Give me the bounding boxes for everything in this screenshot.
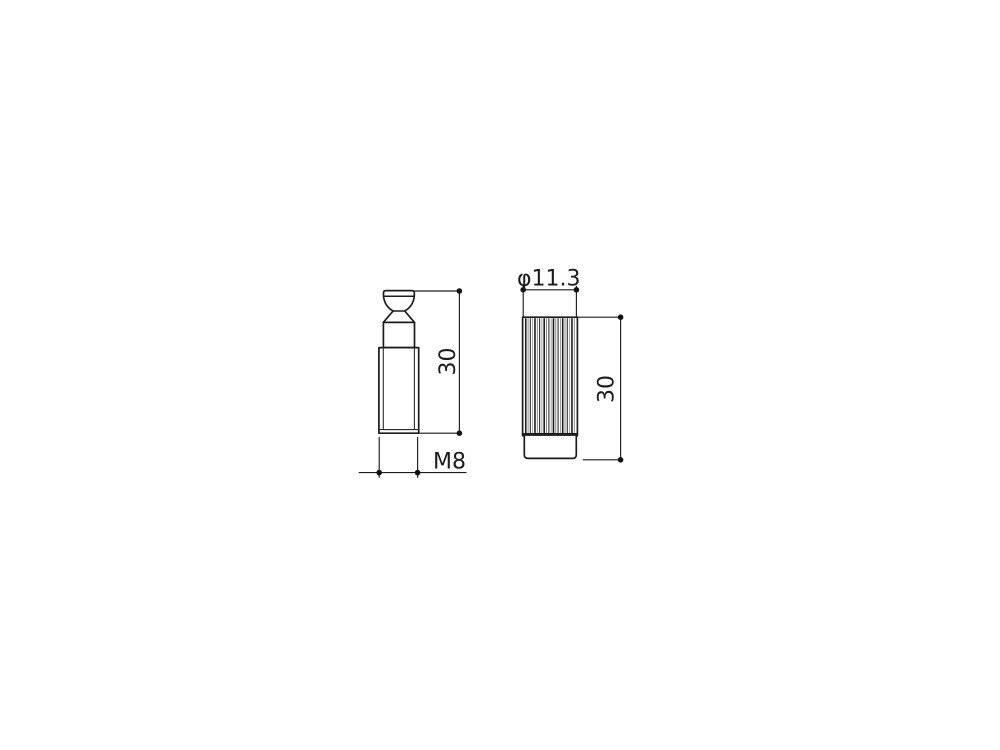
- stud-thread-shaft: [379, 348, 419, 434]
- stud-thread-label: M8: [433, 450, 466, 475]
- anchor-view: φ11.3 30: [517, 267, 623, 463]
- stud-head: [383, 291, 414, 323]
- anchor-height-dimension: 30: [577, 314, 623, 462]
- stud-height-label: 30: [436, 348, 461, 376]
- stud-height-dimension: 30: [414, 288, 462, 436]
- anchor-height-label: 30: [595, 375, 620, 403]
- anchor-bottom-lip: [524, 436, 576, 459]
- anchor-diameter-label: φ11.3: [517, 267, 581, 292]
- anchor-knurl-bottom-band: [523, 433, 578, 436]
- technical-drawing: 30 M8: [0, 0, 1000, 750]
- stud-collar: [383, 322, 414, 347]
- stud-view: 30 M8: [359, 288, 467, 478]
- technical-drawing-page: 30 M8: [0, 0, 1000, 750]
- anchor-diameter-dimension: φ11.3: [517, 267, 581, 317]
- stud-thread-dimension: M8: [359, 437, 467, 478]
